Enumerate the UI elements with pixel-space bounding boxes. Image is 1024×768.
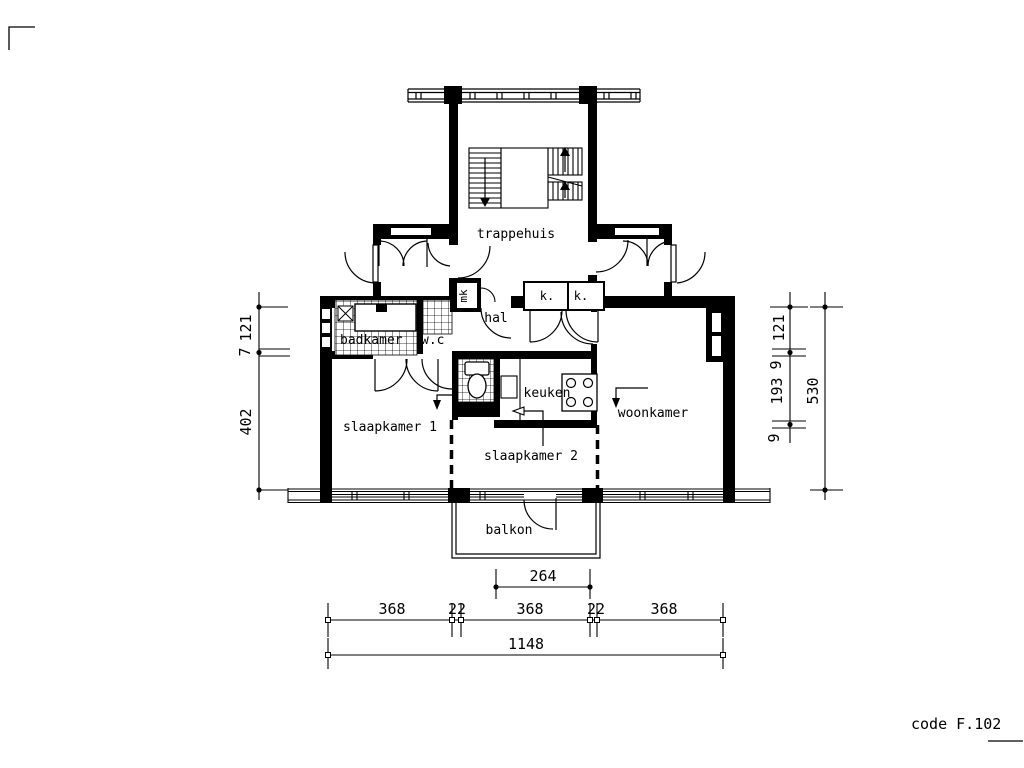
left-wall-vents bbox=[322, 309, 330, 347]
room-label-woonkamer: woonkamer bbox=[618, 406, 689, 421]
meterkast-door-arc bbox=[481, 288, 495, 302]
badkamer: badkamer w.c bbox=[335, 300, 452, 355]
wc-tiled-floor-top bbox=[423, 300, 452, 334]
room-label-keuken: keuken bbox=[524, 386, 571, 401]
room-label-hal: hal bbox=[484, 311, 507, 326]
dim-bay1-368: 368 bbox=[378, 600, 405, 618]
room-label-meterkast: mk bbox=[457, 289, 470, 303]
left-arrow-icon bbox=[513, 407, 524, 415]
vent-arrow-left bbox=[433, 395, 455, 410]
facade-piers bbox=[320, 488, 735, 503]
facade-glazing-lines bbox=[288, 488, 770, 503]
dim-right-193: 193 bbox=[768, 377, 786, 404]
bathtub-icon bbox=[355, 304, 416, 331]
bottom-facade bbox=[288, 488, 770, 503]
keuken: keuken bbox=[501, 359, 597, 426]
vestibule-doors bbox=[345, 239, 705, 283]
dimension-chain-right: 121 9 193 9 530 bbox=[765, 292, 843, 500]
floorplan-sheet: trappehuis bbox=[0, 0, 1024, 768]
down-arrow-icon bbox=[433, 400, 441, 410]
toilet-room bbox=[458, 359, 494, 402]
dim-right-121: 121 bbox=[770, 314, 788, 341]
dim-bay3-368: 368 bbox=[650, 600, 677, 618]
dim-gap2-22: 22 bbox=[587, 600, 605, 618]
dim-gap1-22: 22 bbox=[448, 600, 466, 618]
room-label-wc: w.c bbox=[421, 333, 444, 348]
room-label-badkamer: badkamer bbox=[340, 333, 403, 348]
dim-left-121: 121 bbox=[237, 314, 255, 341]
dim-bay2-368: 368 bbox=[516, 600, 543, 618]
dim-right-9a: 9 bbox=[767, 360, 785, 369]
top-gallery-railing bbox=[408, 86, 640, 104]
sink-icon bbox=[501, 376, 517, 398]
closet-label-right: k. bbox=[574, 289, 588, 303]
meterkast: mk bbox=[450, 278, 495, 312]
dimension-chain-left: 121 7 402 bbox=[236, 292, 290, 500]
room-label-slaapkamer1: slaapkamer 1 bbox=[343, 420, 437, 435]
dim-left-402: 402 bbox=[237, 408, 255, 435]
hall-closets: k. k. bbox=[524, 282, 604, 310]
dim-right-9b: 9 bbox=[765, 433, 783, 442]
closet-label-left: k. bbox=[540, 289, 554, 303]
vestibule-window-right bbox=[615, 228, 659, 235]
dim-balcony-264: 264 bbox=[529, 567, 556, 585]
sheet-code-label: code F.102 bbox=[911, 715, 1001, 733]
room-label-balkon: balkon bbox=[486, 523, 533, 538]
shower-drain-icon bbox=[338, 306, 353, 321]
vestibule-window-left bbox=[391, 228, 431, 235]
balkon: balkon bbox=[452, 498, 600, 558]
dimension-rows-bottom: 264 368 22 368 22 368 1148 bbox=[326, 567, 726, 669]
dim-right-530: 530 bbox=[804, 377, 822, 404]
floorplan-drawing: trappehuis bbox=[0, 0, 1024, 768]
stairwell: trappehuis bbox=[449, 103, 597, 296]
room-label-slaapkamer2: slaapkamer 2 bbox=[484, 449, 578, 464]
dim-left-7: 7 bbox=[236, 347, 254, 356]
vent-arrow-right bbox=[612, 388, 648, 408]
room-label-trappehuis: trappehuis bbox=[477, 227, 555, 242]
dim-overall-1148: 1148 bbox=[508, 635, 544, 653]
